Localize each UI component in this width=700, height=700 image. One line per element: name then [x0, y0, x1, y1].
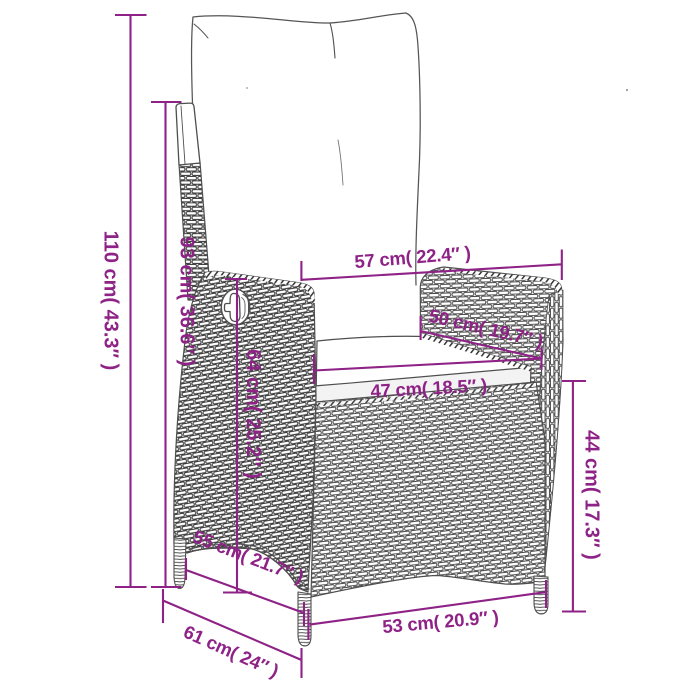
svg-text:93 cm( 36.6″ ): 93 cm( 36.6″ ): [176, 237, 198, 367]
svg-text:110 cm( 43.3″ ): 110 cm( 43.3″ ): [100, 231, 122, 371]
svg-text:64 cm( 25.2″ ): 64 cm( 25.2″ ): [242, 349, 264, 479]
svg-text:44 cm( 17.3″ ): 44 cm( 17.3″ ): [581, 430, 603, 560]
